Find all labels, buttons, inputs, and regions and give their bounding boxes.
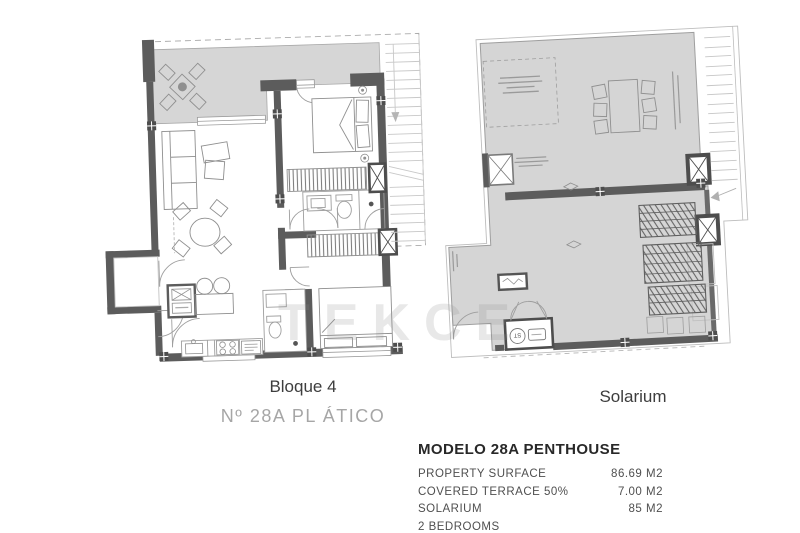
info-row-covered-terrace: COVERED TERRACE 50% 7.00 M2	[418, 486, 663, 498]
sofa-icon	[162, 130, 197, 209]
washing-machine-icon	[241, 341, 260, 355]
floor-plans-drawing: ST	[0, 0, 800, 533]
watermark: TEKCE	[278, 293, 638, 353]
model-info-panel: MODELO 28A PENTHOUSE PROPERTY SURFACE 86…	[418, 441, 663, 533]
toilet-icon	[336, 195, 353, 219]
coffee-table-icon	[201, 142, 230, 181]
fridge-icon	[168, 285, 196, 318]
info-label: COVERED TERRACE 50%	[418, 486, 569, 498]
solarium-title: Solarium	[533, 387, 733, 407]
model-info-title: MODELO 28A PENTHOUSE	[418, 441, 663, 458]
bench-icon	[498, 273, 527, 289]
skylight-icon	[488, 154, 514, 185]
info-value: 85 M2	[629, 503, 663, 515]
info-row-bedrooms: 2 BEDROOMS	[418, 521, 663, 533]
info-label: PROPERTY SURFACE	[418, 468, 546, 480]
kitchen-island-icon	[194, 277, 233, 314]
bloque4-title: Bloque 4	[203, 377, 403, 397]
info-value: 86.69 M2	[611, 468, 663, 480]
info-label: SOLARIUM	[418, 503, 482, 515]
wardrobe-icon	[287, 167, 367, 191]
solarium-outer-border	[733, 26, 743, 220]
stairs-icon	[385, 35, 426, 244]
bathroom-1	[303, 190, 385, 232]
info-row-solarium: SOLARIUM 85 M2	[418, 503, 663, 515]
stair-direction-arrow	[710, 191, 720, 201]
shower-drain-icon	[369, 202, 374, 207]
info-label: 2 BEDROOMS	[418, 521, 500, 533]
bloque4-subtitle: Nº 28A PL ÁTICO	[178, 406, 428, 427]
stair-direction-arrow	[391, 112, 399, 122]
info-value: 7.00 M2	[618, 486, 663, 498]
wardrobe-icon	[307, 233, 379, 257]
bed-icon	[312, 97, 373, 153]
floor-plan-sheet: ST	[0, 0, 800, 533]
info-row-property-surface: PROPERTY SURFACE 86.69 M2	[418, 468, 663, 480]
